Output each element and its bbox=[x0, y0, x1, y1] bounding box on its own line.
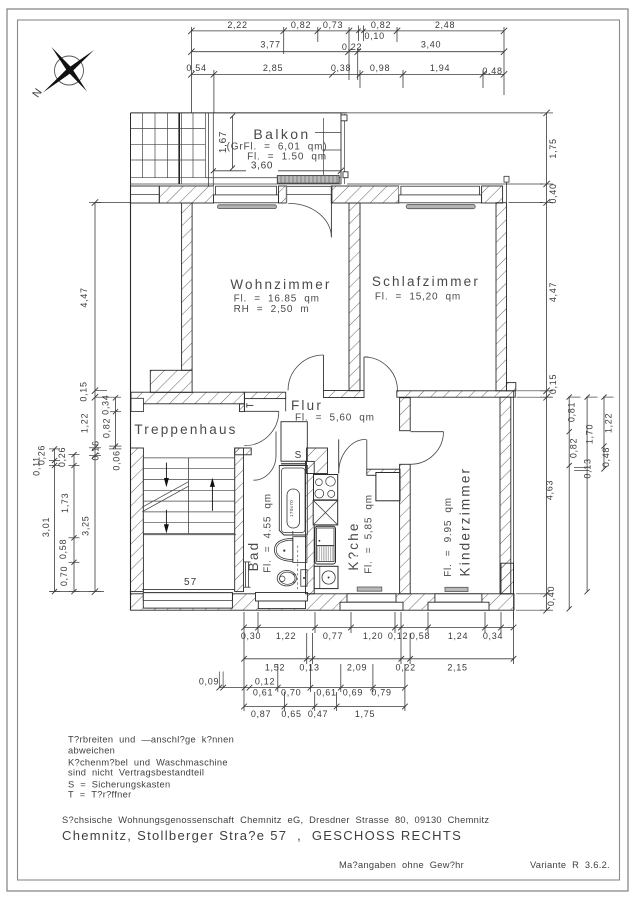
svg-text:Variante R 3.6.2.: Variante R 3.6.2. bbox=[530, 860, 610, 870]
svg-text:2,48: 2,48 bbox=[435, 20, 455, 30]
svg-text:0,61: 0,61 bbox=[253, 688, 273, 698]
svg-text:0,10: 0,10 bbox=[365, 31, 385, 41]
svg-text:0,11: 0,11 bbox=[32, 456, 42, 476]
svg-text:0,70: 0,70 bbox=[281, 688, 301, 698]
svg-text:abweichen: abweichen bbox=[68, 746, 115, 756]
svg-text:Schlafzimmer: Schlafzimmer bbox=[372, 274, 480, 289]
svg-text:2,09: 2,09 bbox=[347, 663, 367, 673]
svg-text:0,22: 0,22 bbox=[396, 663, 416, 673]
svg-text:0,69: 0,69 bbox=[343, 688, 363, 698]
svg-text:Fl. = 16.85 qm: Fl. = 16.85 qm bbox=[234, 294, 320, 305]
svg-text:1,67: 1,67 bbox=[218, 131, 229, 153]
svg-text:0,82: 0,82 bbox=[102, 418, 112, 438]
svg-text:0,87: 0,87 bbox=[251, 709, 271, 719]
svg-text:2,22: 2,22 bbox=[227, 20, 247, 30]
svg-text:3,60: 3,60 bbox=[251, 161, 273, 172]
svg-text:170x70: 170x70 bbox=[289, 500, 295, 517]
svg-text:0,12: 0,12 bbox=[388, 631, 408, 641]
svg-text:Fl. = 5,85 qm: Fl. = 5,85 qm bbox=[364, 494, 375, 574]
svg-text:1,52: 1,52 bbox=[265, 663, 285, 673]
svg-text:0,38: 0,38 bbox=[331, 63, 351, 73]
svg-text:0,15: 0,15 bbox=[79, 381, 89, 401]
svg-text:RH = 2,50 m: RH = 2,50 m bbox=[234, 304, 310, 315]
svg-text:1,73: 1,73 bbox=[60, 493, 70, 513]
svg-text:0,73: 0,73 bbox=[323, 20, 343, 30]
svg-text:Fl. = 9.95 qm: Fl. = 9.95 qm bbox=[443, 497, 454, 577]
svg-text:0,40: 0,40 bbox=[546, 586, 556, 606]
svg-text:0,12: 0,12 bbox=[255, 677, 275, 687]
svg-text:Balkon: Balkon bbox=[253, 126, 310, 142]
svg-text:0,82: 0,82 bbox=[569, 438, 579, 458]
svg-text:4,47: 4,47 bbox=[548, 282, 558, 302]
svg-text:1,24: 1,24 bbox=[448, 631, 468, 641]
svg-text:S = Sicherungskasten: S = Sicherungskasten bbox=[68, 780, 170, 790]
svg-text:Chemnitz, Stollberger Stra?e 5: Chemnitz, Stollberger Stra?e 57 , GESCHO… bbox=[62, 828, 462, 843]
svg-text:0,06: 0,06 bbox=[112, 450, 122, 470]
svg-text:2,15: 2,15 bbox=[447, 663, 467, 673]
svg-text:0,58: 0,58 bbox=[58, 539, 68, 559]
svg-text:4,47: 4,47 bbox=[79, 287, 89, 307]
svg-text:sind nicht Vertragsbestandte: sind nicht Vertragsbestandteil bbox=[68, 768, 204, 778]
svg-text:0,26: 0,26 bbox=[57, 447, 67, 467]
svg-text:1,20: 1,20 bbox=[363, 631, 383, 641]
svg-text:0,54: 0,54 bbox=[186, 63, 206, 73]
svg-text:0,58: 0,58 bbox=[410, 631, 430, 641]
svg-text:4,63: 4,63 bbox=[545, 480, 555, 500]
svg-text:1,22: 1,22 bbox=[604, 413, 614, 433]
svg-text:T?rbreiten und —anschl?ge k: T?rbreiten und —anschl?ge k?nnen bbox=[68, 735, 234, 745]
svg-text:0,82: 0,82 bbox=[371, 20, 391, 30]
svg-text:K?chenm?bel und Waschmaschin: K?chenm?bel und Waschmaschine bbox=[68, 758, 228, 768]
svg-text:0,13: 0,13 bbox=[583, 458, 593, 478]
svg-text:Treppenhaus: Treppenhaus bbox=[134, 422, 237, 437]
svg-text:0,82: 0,82 bbox=[291, 20, 311, 30]
svg-text:0,48: 0,48 bbox=[601, 447, 611, 467]
svg-text:Wohnzimmer: Wohnzimmer bbox=[230, 277, 331, 292]
svg-text:3,25: 3,25 bbox=[81, 516, 91, 536]
svg-text:0,16: 0,16 bbox=[91, 440, 101, 460]
svg-text:Ma?angaben ohne Gew?hr: Ma?angaben ohne Gew?hr bbox=[339, 860, 464, 870]
svg-text:1,75: 1,75 bbox=[355, 709, 375, 719]
svg-text:Fl. = 5,60 qm: Fl. = 5,60 qm bbox=[295, 413, 375, 424]
svg-text:K?che: K?che bbox=[346, 521, 361, 570]
svg-text:57: 57 bbox=[184, 577, 197, 588]
svg-text:2,85: 2,85 bbox=[263, 63, 283, 73]
svg-text:0,47: 0,47 bbox=[308, 709, 328, 719]
svg-text:S?chsische Wohnungsgenossensc: S?chsische Wohnungsgenossenschaft Chemni… bbox=[62, 815, 489, 825]
svg-text:1,22: 1,22 bbox=[276, 631, 296, 641]
svg-text:3,40: 3,40 bbox=[421, 39, 441, 49]
svg-text:1,22: 1,22 bbox=[80, 413, 90, 433]
svg-text:0,61: 0,61 bbox=[316, 688, 336, 698]
svg-text:0,79: 0,79 bbox=[371, 688, 391, 698]
svg-text:1,94: 1,94 bbox=[430, 63, 450, 73]
svg-text:0,34: 0,34 bbox=[483, 631, 503, 641]
svg-text:1,75: 1,75 bbox=[548, 138, 558, 158]
svg-text:0,22: 0,22 bbox=[342, 42, 362, 52]
svg-text:0,40: 0,40 bbox=[548, 183, 558, 203]
svg-text:3,77: 3,77 bbox=[260, 39, 280, 49]
svg-text:0,09: 0,09 bbox=[199, 677, 219, 687]
svg-text:3,01: 3,01 bbox=[41, 517, 51, 537]
svg-text:0,98: 0,98 bbox=[370, 63, 390, 73]
svg-text:T = T?r?ffner: T = T?r?ffner bbox=[68, 790, 132, 800]
svg-text:0,81: 0,81 bbox=[567, 402, 577, 422]
svg-text:1,70: 1,70 bbox=[585, 424, 595, 444]
svg-text:0,13: 0,13 bbox=[299, 663, 319, 673]
svg-text:Fl. = 4.55 qm: Fl. = 4.55 qm bbox=[263, 493, 274, 573]
svg-text:0,70: 0,70 bbox=[59, 566, 69, 586]
svg-text:Fl. = 15,20 qm: Fl. = 15,20 qm bbox=[375, 292, 461, 303]
svg-text:0,34: 0,34 bbox=[101, 395, 111, 415]
svg-text:S: S bbox=[295, 450, 302, 461]
svg-text:0,77: 0,77 bbox=[323, 631, 343, 641]
svg-text:0,48: 0,48 bbox=[482, 66, 502, 76]
svg-text:Kinderzimmer: Kinderzimmer bbox=[458, 467, 473, 577]
svg-text:Flur: Flur bbox=[291, 398, 323, 413]
